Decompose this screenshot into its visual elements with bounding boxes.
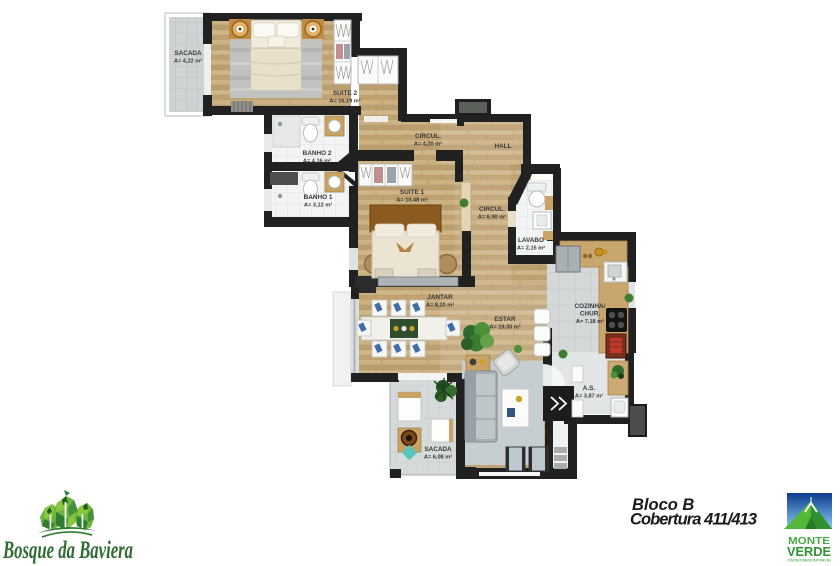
svg-text:BANHO 1: BANHO 1 — [304, 194, 333, 201]
svg-text:CHUR.: CHUR. — [580, 311, 600, 318]
svg-text:Bosque da Baviera: Bosque da Baviera — [2, 537, 133, 564]
svg-text:A= 4,16 m²: A= 4,16 m² — [303, 158, 331, 165]
svg-text:A= 6,08 m²: A= 6,08 m² — [424, 454, 452, 461]
svg-text:A= 3,87 m²: A= 3,87 m² — [575, 393, 603, 400]
svg-text:ESTAR: ESTAR — [494, 316, 516, 323]
svg-text:A= 6,90 m²: A= 6,90 m² — [478, 214, 506, 221]
svg-text:COZINHA/: COZINHA/ — [575, 303, 606, 310]
svg-text:HALL: HALL — [494, 143, 511, 150]
svg-text:BANHO 2: BANHO 2 — [303, 150, 332, 157]
svg-text:CIRCUL.: CIRCUL. — [415, 133, 441, 140]
svg-text:LAVABO: LAVABO — [518, 237, 544, 244]
svg-text:CIRCUL.: CIRCUL. — [479, 206, 505, 213]
svg-text:A= 10,48 m²: A= 10,48 m² — [396, 197, 427, 204]
svg-text:VERDE: VERDE — [787, 545, 831, 559]
svg-text:SACADA: SACADA — [424, 446, 452, 453]
svg-text:A= 7,18 m²: A= 7,18 m² — [576, 318, 604, 325]
svg-text:A= 8,20 m²: A= 8,20 m² — [426, 302, 454, 309]
svg-text:A= 4,22 m²: A= 4,22 m² — [174, 58, 202, 65]
svg-text:SUITE 2: SUITE 2 — [333, 90, 358, 97]
svg-text:A= 16,19 m²: A= 16,19 m² — [329, 98, 360, 105]
svg-text:CONSTRUTORA E INCORPORADORA: CONSTRUTORA E INCORPORADORA — [787, 559, 832, 563]
svg-text:JANTAR: JANTAR — [427, 294, 453, 301]
svg-text:A= 4,20 m²: A= 4,20 m² — [414, 141, 442, 148]
svg-text:A= 3,12 m²: A= 3,12 m² — [304, 202, 332, 209]
svg-text:Cobertura 411/413: Cobertura 411/413 — [630, 511, 757, 529]
svg-text:SACADA: SACADA — [174, 50, 202, 57]
svg-text:A= 19,30 m²: A= 19,30 m² — [489, 324, 520, 331]
svg-text:A= 2,15 m²: A= 2,15 m² — [517, 245, 545, 252]
svg-text:A.S.: A.S. — [583, 385, 596, 392]
svg-text:SUITE 1: SUITE 1 — [400, 189, 425, 196]
